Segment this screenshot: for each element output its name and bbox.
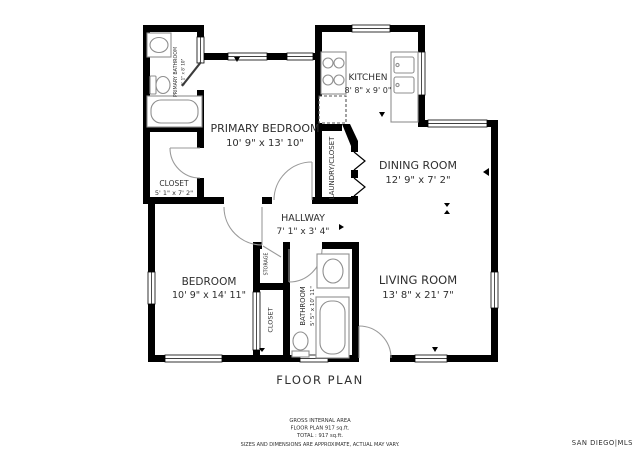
label-primary-bathroom-dims: 5' 1" x 8' 10" [181,59,186,86]
bathtub-fixture [316,297,349,358]
sink-fixture [147,33,171,57]
refrigerator-fixture [319,96,346,123]
label-kitchen: KITCHEN [349,73,388,83]
label-bathroom: BATHROOM [299,286,307,325]
window [165,355,222,362]
closet-slider-door [253,292,260,350]
toilet-fixture [292,332,309,357]
label-bathroom-dims: 5' 5" x 10' 11" [310,286,316,326]
label-dining-room-dims: 12' 9" x 7' 2" [385,175,450,186]
label-laundry-closet: LAUNDRY/CLOSET [328,136,336,200]
stove-fixture [321,52,346,94]
watermark-san-diego-mls: SAN DIEGO|MLS [572,439,633,447]
label-primary-bedroom-dims: 10' 9" x 13' 10" [226,138,304,149]
footer-disclaimer: SIZES AND DIMENSIONS ARE APPROXIMATE, AC… [241,442,400,448]
label-bedroom-dims: 10' 9" x 14' 11" [172,290,246,301]
door-arc-closet-primary [170,148,200,178]
door-arc-front-entry [359,326,391,358]
door-arc-bedroom [224,207,262,245]
floor-plan-canvas: PRIMARY BEDROOM 10' 9" x 13' 10" KITCHEN… [0,0,640,453]
window [415,355,447,362]
label-bedroom: BEDROOM [182,276,237,288]
window [428,120,487,127]
footer-total-area: TOTAL : 917 sq.ft. [296,433,343,439]
floor-plan-image: PRIMARY BEDROOM 10' 9" x 13' 10" KITCHEN… [0,0,640,453]
label-living-room-dims: 13' 8" x 21' 7" [382,290,454,301]
vanity-sink-fixture [317,254,349,288]
label-closet-bedroom: CLOSET [267,307,275,332]
door-arc-primary-bedroom [274,162,312,200]
label-hallway: HALLWAY [281,213,325,224]
window [491,272,498,308]
label-closet-primary-dims: 5' 1" x 7' 2" [155,189,193,197]
footer-area-summary: GROSS INTERNAL AREA FLOOR PLAN 917 sq.ft… [241,418,400,448]
window [148,272,155,304]
window [418,52,425,95]
label-primary-bedroom: PRIMARY BEDROOM [210,122,319,135]
label-primary-bathroom: PRIMARY BATHROOM [173,47,179,97]
label-kitchen-dims: 8' 8" x 9' 0" [344,86,391,95]
footer-gross-internal-area: GROSS INTERNAL AREA [289,418,351,424]
bathtub-fixture [147,96,202,127]
window [197,37,204,63]
window [287,53,313,60]
label-closet-primary: CLOSET [159,179,189,188]
label-living-room: LIVING ROOM [379,273,457,287]
toilet-fixture [150,76,170,94]
label-hallway-dims: 7' 1" x 3' 4" [277,227,330,237]
label-storage: STORAGE [264,253,270,276]
window [228,53,267,60]
label-dining-room: DINING ROOM [379,159,457,172]
plan-title: FLOOR PLAN [276,373,363,387]
window [352,25,390,32]
footer-floor-plan-area: FLOOR PLAN 917 sq.ft. [291,426,350,432]
